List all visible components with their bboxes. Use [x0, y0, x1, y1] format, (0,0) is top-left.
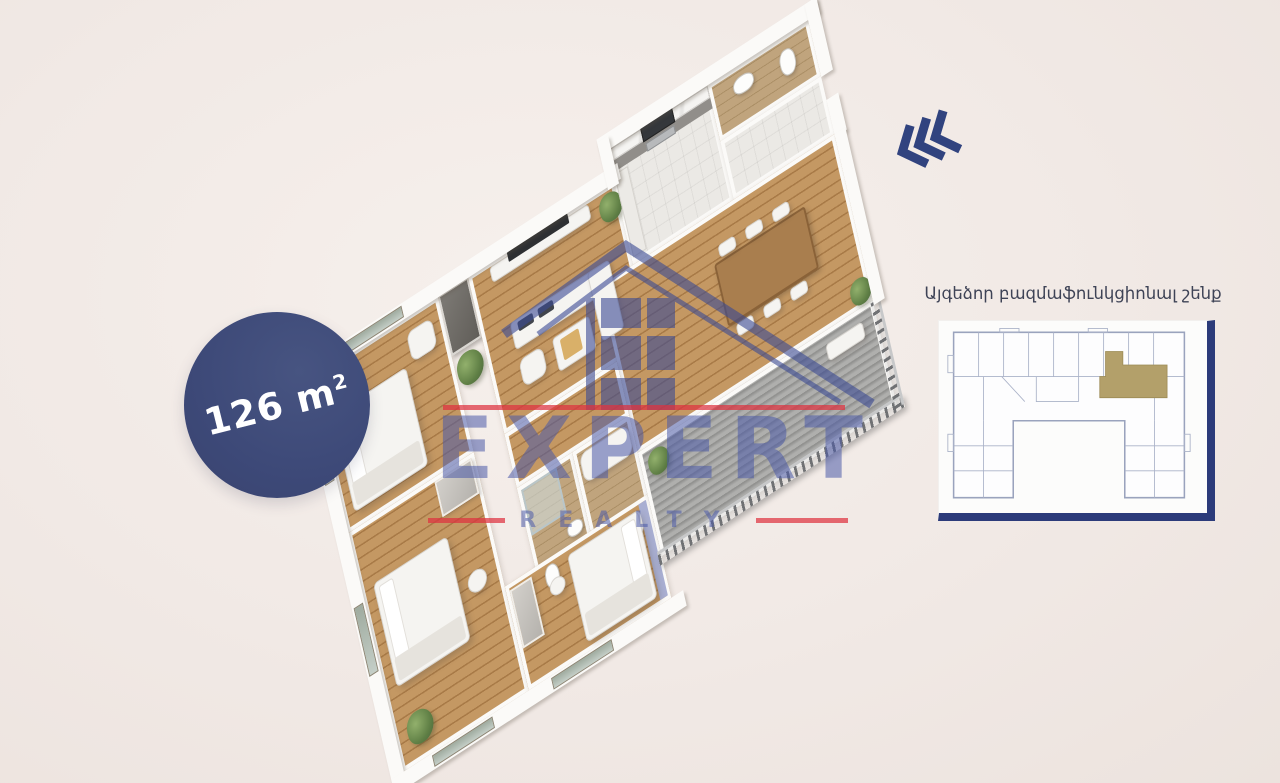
- real-estate-render: EXPERT REALTY 126 m2 Այգեձոր բազմաֆունկց…: [0, 0, 1280, 783]
- area-number: 126 m: [200, 370, 340, 444]
- inset-title: Այգեձոր բազմաֆունկցիոնալ շենք: [920, 284, 1226, 303]
- floor-plan-3d: [312, 51, 906, 772]
- area-value: 126 m2: [200, 366, 355, 444]
- area-badge: 126 m2: [184, 312, 370, 498]
- key-plan-drawing: [944, 326, 1194, 504]
- building-key-plan: [938, 320, 1215, 521]
- triple-chevron-left-icon: [886, 103, 968, 179]
